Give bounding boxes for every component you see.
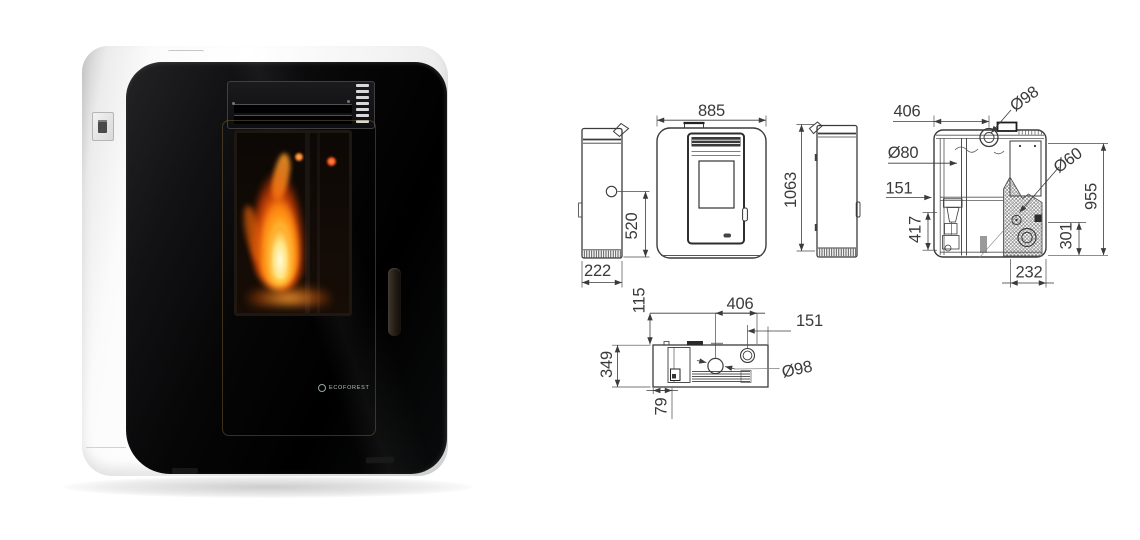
top-grill	[1019, 131, 1041, 135]
vent-fin	[356, 84, 369, 87]
dim-section-burner-diameter: Ø60	[1050, 144, 1085, 177]
dim-section-pipe-diameter: Ø80	[888, 144, 919, 162]
ember-spark	[327, 157, 336, 166]
vent-fin	[356, 96, 369, 99]
dim-section-bottom-width: 232	[1016, 264, 1043, 282]
dim-top-rear-width: 406	[727, 295, 754, 313]
dim-section-body-height: 955	[1083, 183, 1101, 210]
auger-assembly	[943, 199, 963, 251]
vent-fin	[356, 108, 369, 111]
stove-foot	[366, 457, 394, 464]
fire-window	[234, 130, 352, 316]
front-view: 885	[657, 102, 766, 258]
brand-logo: ECOFOREST	[318, 384, 370, 392]
stove-foot	[172, 468, 198, 474]
dim-top-flue-offset: 151	[796, 312, 823, 330]
product-photo: ECOFOREST	[0, 0, 560, 540]
vent-slot	[234, 104, 352, 113]
brand-flame-icon	[318, 384, 326, 392]
side-view-right: 1063	[782, 122, 860, 257]
flame	[267, 217, 293, 279]
door-handle	[388, 268, 401, 336]
dim-section-top-width: 406	[894, 103, 921, 121]
dim-top-corner-offset: 79	[653, 398, 671, 416]
base-seam	[86, 447, 126, 448]
dim-overall-height: 1063	[782, 172, 800, 208]
dim-section-flue-diameter: Ø98	[1007, 83, 1042, 116]
logo-mark	[724, 234, 732, 238]
pellet-lid-seam	[168, 50, 204, 56]
vent-fin	[356, 90, 369, 93]
vent-fin	[356, 102, 369, 105]
floor-shadow	[64, 476, 472, 498]
side-control-plate	[92, 112, 114, 141]
product-page: ECOFOREST	[0, 0, 1140, 540]
section-view: 406 Ø98 Ø80 151 417 Ø60 955	[886, 83, 1108, 288]
technical-drawings: 222 520 885	[555, 70, 1140, 470]
dim-air-inlet-height: 520	[623, 213, 641, 240]
vent-fin	[356, 114, 369, 117]
dim-top-front-offset: 115	[631, 288, 649, 314]
dim-front-width: 885	[698, 102, 725, 120]
bottom-view: Ø98 406 115 151 349 79	[598, 288, 823, 419]
dim-section-outlet-height: 301	[1058, 223, 1076, 250]
dim-section-side-offset: 151	[886, 180, 913, 198]
side-view-left: 222 520	[579, 124, 650, 288]
screw-icon	[232, 102, 235, 105]
dim-side-depth: 222	[584, 262, 611, 280]
dim-section-lower-height: 417	[907, 216, 925, 243]
ember-spark	[295, 153, 303, 161]
screw-icon	[347, 100, 350, 103]
dim-top-flue-diameter: Ø98	[780, 358, 814, 382]
brand-name: ECOFOREST	[329, 385, 370, 391]
side-display	[98, 120, 107, 133]
dim-top-depth: 349	[598, 351, 616, 378]
flue-outlet	[980, 123, 1017, 147]
